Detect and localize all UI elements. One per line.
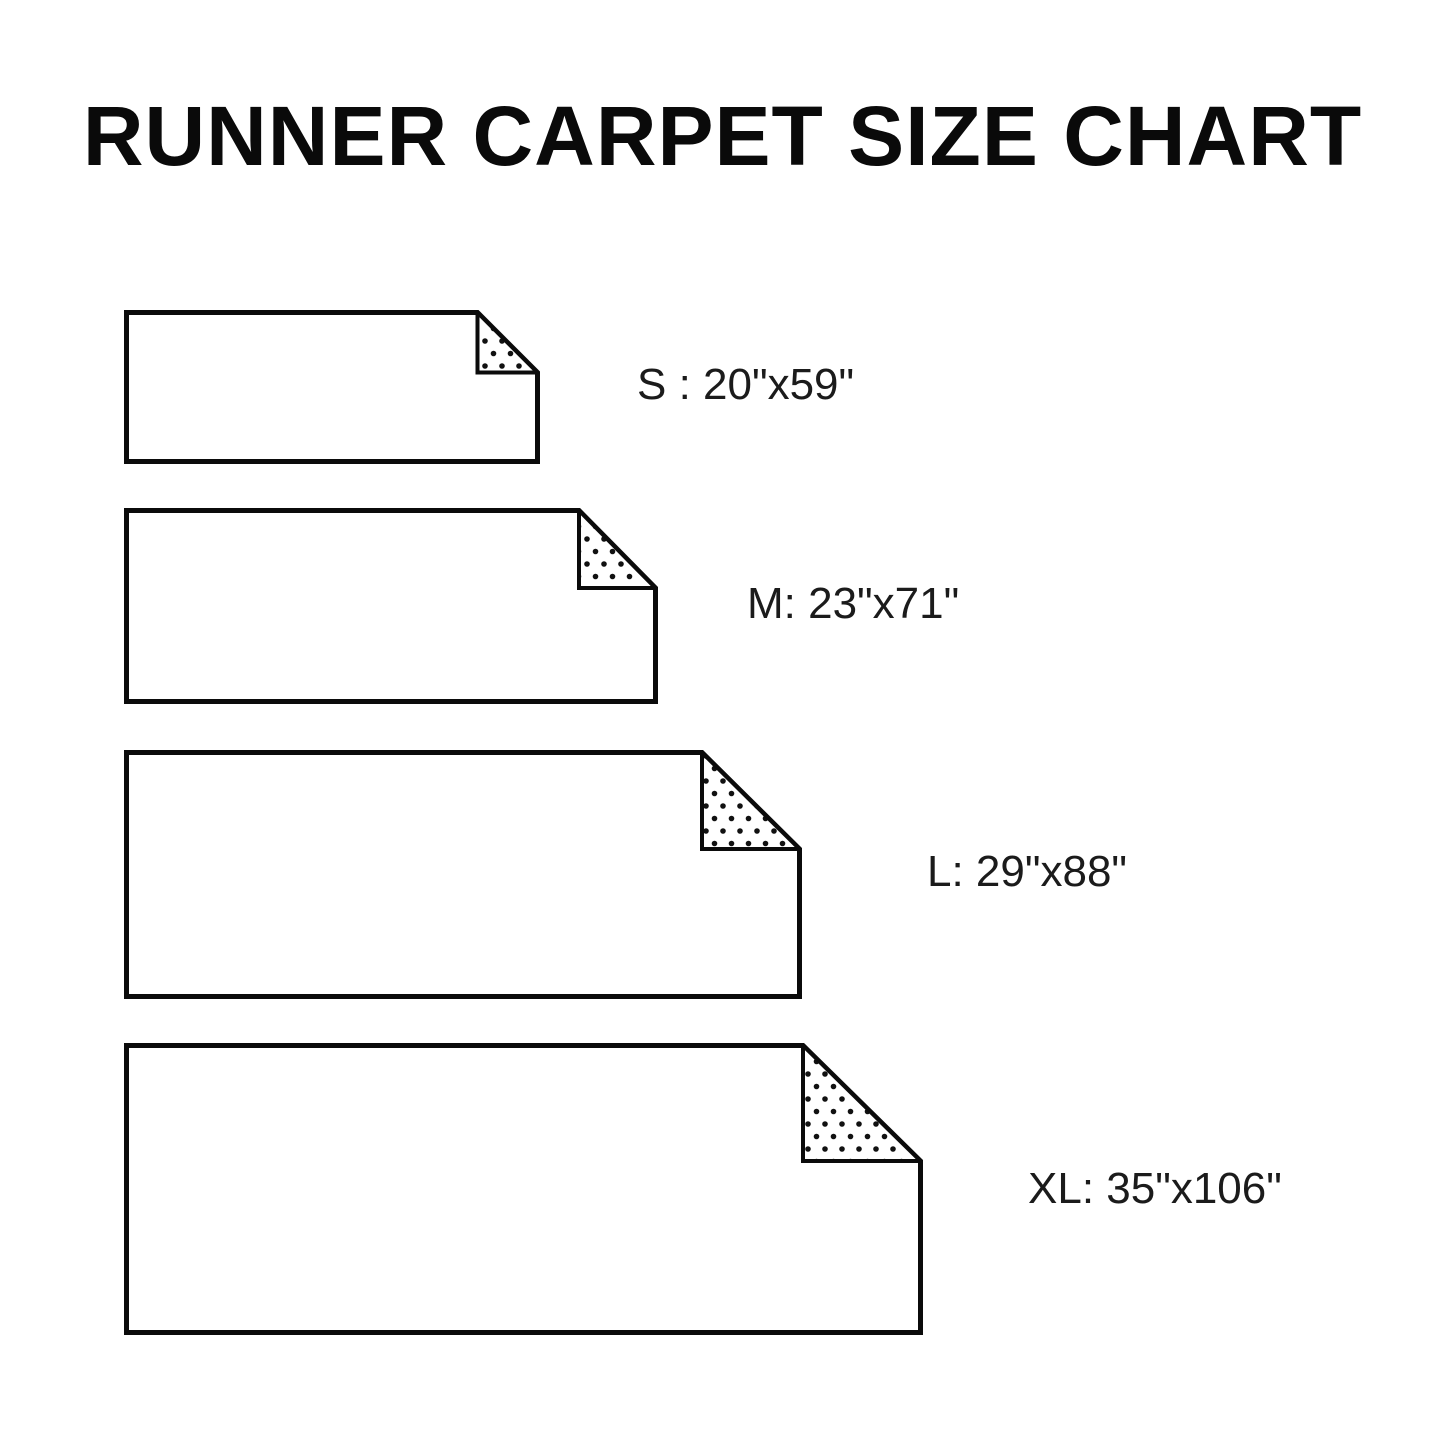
size-label-l: L: 29"x88" <box>927 850 1127 894</box>
size-label-s: S : 20"x59" <box>637 363 854 407</box>
rug-s-fold-corner-icon <box>478 313 538 373</box>
rug-m-fold-corner-icon <box>579 511 656 589</box>
runner-carpet-size-chart: RUNNER CARPET SIZE CHART S : 20"x59" M: … <box>0 0 1445 1445</box>
rug-xl-shape <box>124 1043 923 1335</box>
page-title: RUNNER CARPET SIZE CHART <box>0 94 1445 178</box>
size-label-xl: XL: 35"x106" <box>1028 1167 1282 1211</box>
size-label-m: M: 23"x71" <box>747 582 959 626</box>
rug-xl-fold-corner-icon <box>803 1046 921 1162</box>
rug-s-shape <box>124 310 540 464</box>
rug-m-outline <box>127 511 656 702</box>
rug-l-outline <box>127 753 800 997</box>
rug-m-shape <box>124 508 658 704</box>
rug-l-fold-corner-icon <box>702 753 800 850</box>
rug-l-shape <box>124 750 802 999</box>
